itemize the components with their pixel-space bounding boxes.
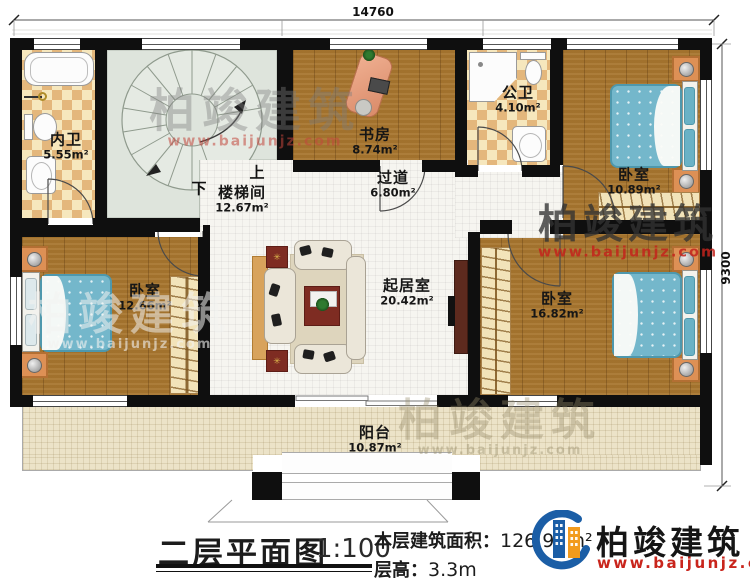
wall-segment xyxy=(203,225,210,237)
room-label-yangtai: 阳台 10.87m² xyxy=(348,424,401,455)
wall-segment xyxy=(127,395,215,407)
brand-url: www.baijunjz.com xyxy=(597,554,750,572)
dimension-top: 14760 xyxy=(352,5,394,19)
floor-height-value: 3.3m xyxy=(428,559,477,581)
wall-segment xyxy=(10,38,22,277)
wall-segment xyxy=(198,237,210,395)
room-label-qijushi: 起居室 20.42m² xyxy=(380,277,433,308)
wall-segment xyxy=(550,220,563,234)
room-label-shufang: 书房 8.74m² xyxy=(352,126,397,157)
window xyxy=(483,38,551,50)
window xyxy=(142,38,240,50)
porch-outline xyxy=(208,500,448,522)
window xyxy=(10,277,22,345)
plan-linework xyxy=(0,0,750,586)
room-label-gongwei: 公卫 4.10m² xyxy=(495,84,540,115)
wall-segment xyxy=(455,165,478,177)
balcony-pillar xyxy=(252,472,282,500)
wall-segment xyxy=(10,395,33,407)
window xyxy=(700,270,712,353)
room-label-woshi2: 卧室 12.66m² xyxy=(118,282,171,313)
brand-logo-icon xyxy=(532,510,592,582)
wall-segment xyxy=(95,50,107,218)
dimension-right: 9300 xyxy=(719,251,733,284)
brand-logo: 柏竣建筑 www.baijunjz.com xyxy=(532,510,747,582)
wall-segment xyxy=(557,395,700,407)
wall-segment xyxy=(550,38,563,165)
title-underline-thin xyxy=(156,571,372,572)
window xyxy=(34,38,80,50)
room-label-loutijian: 楼梯间 12.67m² xyxy=(215,184,268,215)
wall-segment xyxy=(437,395,508,407)
floor-plan-sheet: ✳ ✳ xyxy=(0,0,750,586)
window xyxy=(508,395,557,407)
window xyxy=(330,38,427,50)
floor-height-line: 层高：3.3m xyxy=(374,556,477,582)
room-label-woshi3: 卧室 16.82m² xyxy=(530,290,583,321)
window xyxy=(700,80,712,170)
floor-height-label: 层高： xyxy=(374,560,428,581)
wall-segment xyxy=(293,160,380,172)
wall-segment xyxy=(215,395,295,407)
wall-segment xyxy=(277,38,293,160)
window xyxy=(567,38,678,50)
stairs-up-label: 上 xyxy=(249,162,264,183)
wall-segment xyxy=(560,220,712,234)
floor-area-label: 本层建筑面积： xyxy=(374,531,500,552)
room-label-guodao: 过道 6.80m² xyxy=(370,169,415,200)
stairs-down-label: 下 xyxy=(191,178,206,199)
wall-segment xyxy=(455,38,467,172)
wall-segment xyxy=(468,232,480,395)
wall-segment xyxy=(700,38,712,80)
wall-segment xyxy=(480,220,512,234)
wall-segment xyxy=(80,38,142,50)
wall-segment xyxy=(422,160,455,172)
sliding-door xyxy=(296,396,438,406)
balcony-pillar xyxy=(452,472,480,500)
title-underline-thick xyxy=(156,564,372,568)
wall-segment xyxy=(522,165,560,177)
room-label-neiwei: 内卫 5.55m² xyxy=(43,131,88,162)
room-label-woshi1: 卧室 10.89m² xyxy=(607,166,660,197)
window xyxy=(33,395,127,407)
wall-segment xyxy=(700,353,712,465)
wall-segment xyxy=(10,225,155,237)
